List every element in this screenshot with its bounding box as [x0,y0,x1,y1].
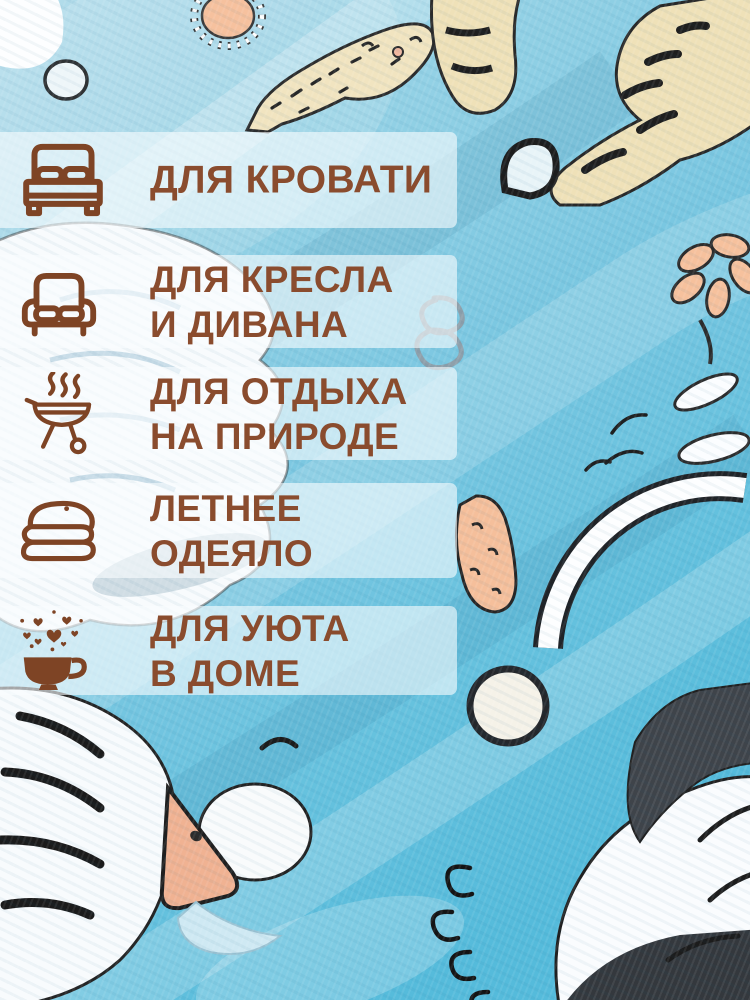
feature-line: В ДОМЕ [150,651,350,696]
feature-line: ЛЕТНЕЕ [150,486,313,531]
feature-label-picnic: ДЛЯ ОТДЫХА НА ПРИРОДЕ [150,369,408,459]
feature-line: ДЛЯ ОТДЫХА [150,369,408,414]
feature-label-sofa: ДЛЯ КРЕСЛА И ДИВАНА [150,257,394,347]
feature-band-blanket: ЛЕТНЕЕ ОДЕЯЛО [0,483,457,578]
feature-band-sofa: ДЛЯ КРЕСЛА И ДИВАНА [0,255,457,348]
feature-band-cozy: ДЛЯ УЮТА В ДОМЕ [0,606,457,695]
feature-line: ДЛЯ КРОВАТИ [150,158,432,203]
feature-line: ДЛЯ КРЕСЛА [150,257,394,302]
cat-ear-patch [504,142,556,196]
folded-blanket-icon [14,494,102,568]
feature-line: ОДЕЯЛО [150,531,313,576]
bed-icon [17,139,109,221]
feature-band-picnic: ДЛЯ ОТДЫХА НА ПРИРОДЕ [0,367,457,460]
sofa-icon [14,264,104,340]
coffee-cup-hearts-icon [14,608,94,694]
feature-label-blanket: ЛЕТНЕЕ ОДЕЯЛО [150,486,313,576]
feature-label-cozy: ДЛЯ УЮТА В ДОМЕ [150,606,350,696]
feature-line: ДЛЯ УЮТА [150,606,350,651]
white-circle [470,669,546,743]
product-infographic: ДЛЯ КРОВАТИ ДЛЯ КРЕСЛА И ДИВАНА [0,0,750,1000]
feature-label-bed: ДЛЯ КРОВАТИ [150,158,432,203]
feature-line: И ДИВАНА [150,302,394,347]
bbq-grill-icon [22,372,100,456]
feature-line: НА ПРИРОДЕ [150,414,408,459]
feature-band-bed: ДЛЯ КРОВАТИ [0,132,457,228]
outlined-circle [45,61,87,99]
